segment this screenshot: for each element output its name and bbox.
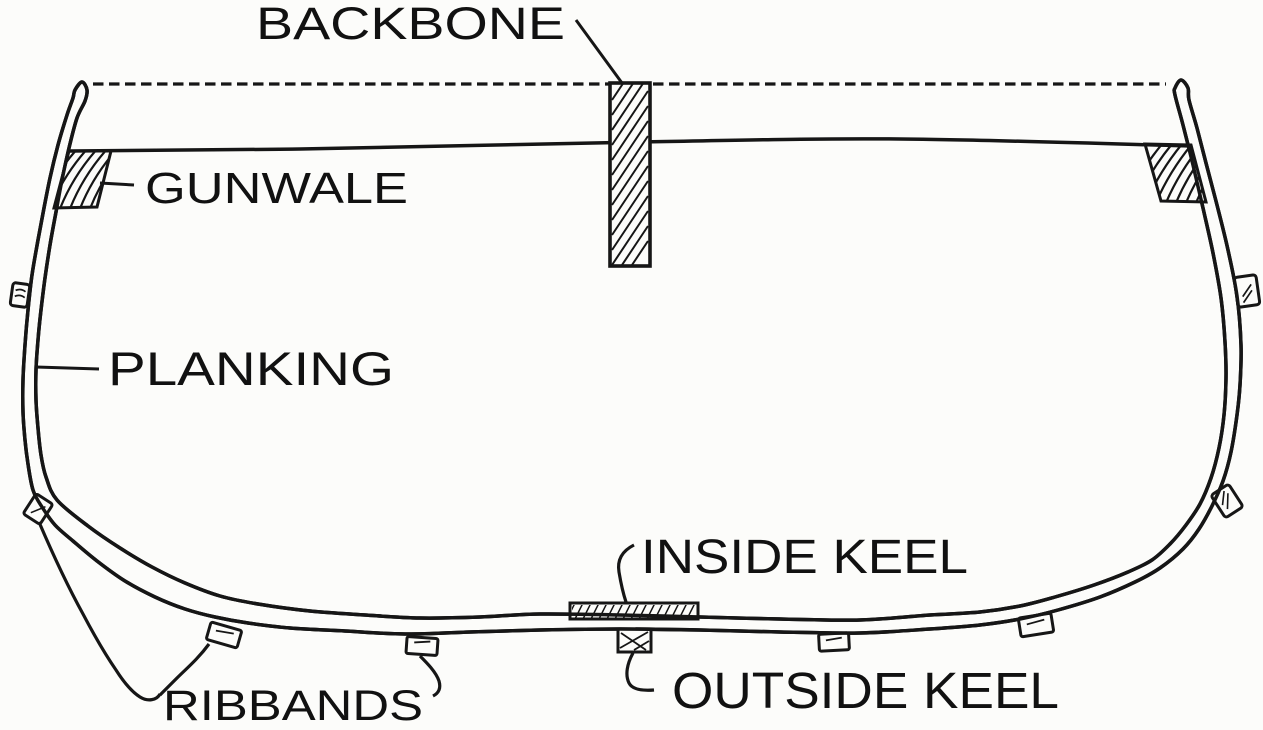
svg-text:INSIDE KEEL: INSIDE KEEL bbox=[641, 531, 968, 584]
svg-text:RIBBANDS: RIBBANDS bbox=[163, 682, 423, 730]
svg-text:GUNWALE: GUNWALE bbox=[145, 164, 408, 213]
svg-text:BACKBONE: BACKBONE bbox=[256, 0, 565, 49]
svg-text:PLANKING: PLANKING bbox=[108, 342, 394, 395]
svg-text:OUTSIDE KEEL: OUTSIDE KEEL bbox=[672, 662, 1059, 719]
